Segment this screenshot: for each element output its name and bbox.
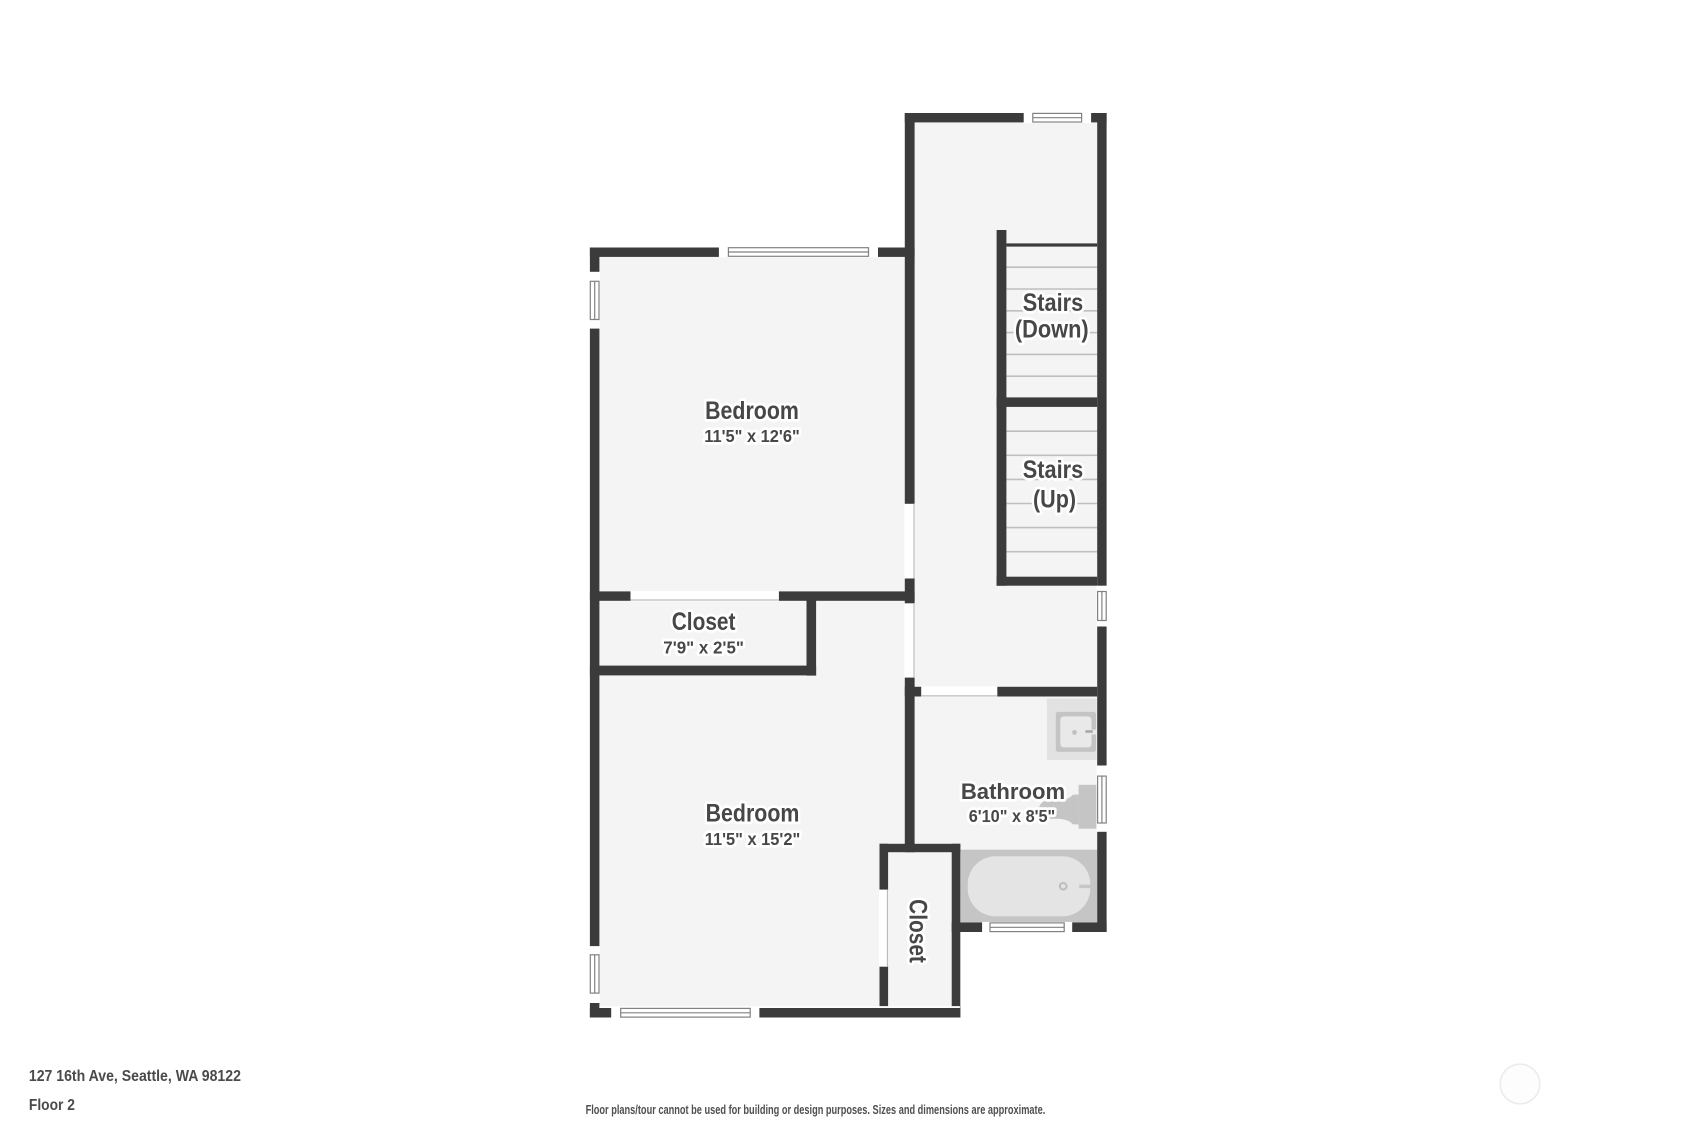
svg-text:Floor plans/tour cannot be use: Floor plans/tour cannot be used for buil… <box>586 1103 1046 1117</box>
svg-text:Bedroom: Bedroom <box>706 800 800 828</box>
svg-text:Closet: Closet <box>672 608 736 636</box>
svg-text:(Up): (Up) <box>1033 486 1076 514</box>
svg-text:Stairs: Stairs <box>1023 289 1083 317</box>
svg-text:Floor 2: Floor 2 <box>29 1097 75 1114</box>
svg-text:11'5" x 12'6": 11'5" x 12'6" <box>704 426 800 446</box>
svg-text:(Down): (Down) <box>1015 316 1089 344</box>
svg-text:Bedroom: Bedroom <box>705 397 799 425</box>
svg-text:127 16th Ave, Seattle, WA 9812: 127 16th Ave, Seattle, WA 98122 <box>29 1068 241 1085</box>
svg-text:Closet: Closet <box>904 899 932 963</box>
svg-text:Bathroom: Bathroom <box>961 779 1065 804</box>
svg-text:11'5" x 15'2": 11'5" x 15'2" <box>705 829 801 849</box>
svg-text:Stairs: Stairs <box>1023 456 1083 484</box>
svg-text:6'10" x 8'5": 6'10" x 8'5" <box>969 806 1056 826</box>
svg-text:7'9" x 2'5": 7'9" x 2'5" <box>663 638 744 658</box>
